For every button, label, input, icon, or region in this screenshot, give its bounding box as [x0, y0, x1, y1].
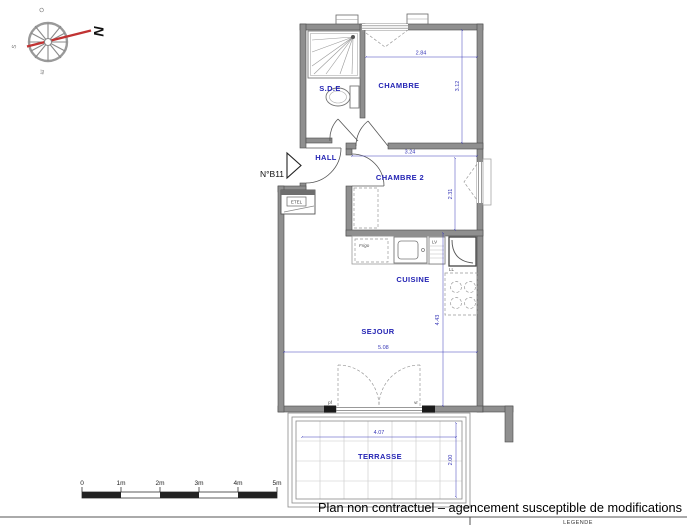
- worktop-corner: [449, 237, 476, 266]
- shower-icon: [308, 31, 360, 78]
- window-chambre2: [464, 159, 491, 205]
- vent-shafts: [336, 14, 428, 24]
- french-door-terrace: pf vr: [324, 365, 435, 413]
- wall-segment: [360, 24, 365, 118]
- scale-bar: 0 1m 2m 3m 4m 5m: [80, 480, 281, 498]
- technical-closet: ETEL: [281, 190, 315, 214]
- scale-label-2m: 2m: [155, 480, 164, 487]
- washing-machine-icon: LL: [445, 267, 477, 315]
- scale-label-4m: 4m: [233, 480, 242, 487]
- dim-chambre2-width: 3.24: [405, 150, 416, 156]
- etel-label: ETEL: [291, 200, 303, 205]
- window-chambre: [362, 24, 408, 47]
- wall-segment: [346, 149, 352, 155]
- disclaimer-text: Plan non contractuel – agencement suscep…: [318, 500, 682, 515]
- wall-segment: [300, 24, 306, 148]
- floor-plan-page: N O S E: [0, 0, 687, 525]
- wall-segment: [477, 24, 483, 412]
- compass-east-label: E: [40, 68, 45, 74]
- scale-label-5m: 5m: [272, 480, 281, 487]
- scale-label-3m: 3m: [194, 480, 203, 487]
- compass-north-label: N: [91, 26, 107, 37]
- door-pf-label: pf: [328, 400, 333, 405]
- dim-terrasse-width: 4.07: [374, 430, 385, 436]
- wall-segment: [306, 138, 332, 143]
- room-label-hall: HALL: [315, 153, 337, 162]
- dim-terrasse-depth: 2.00: [448, 455, 454, 466]
- compass-rose-icon: N O S E: [12, 8, 107, 75]
- footer: Plan non contractuel – agencement suscep…: [0, 500, 687, 525]
- door-vr-label: vr: [414, 400, 418, 405]
- dim-chambre-width: 2.84: [416, 51, 427, 57]
- compass-south-label: S: [12, 44, 19, 49]
- fridge-icon: Frigo: [355, 239, 388, 262]
- wall-segment: [505, 406, 513, 442]
- room-labels: S.D.E CHAMBRE HALL CHAMBRE 2 CUISINE SEJ…: [315, 81, 429, 461]
- wall-segment: [278, 186, 284, 412]
- room-label-chambre: CHAMBRE: [378, 81, 419, 90]
- room-label-sejour: SEJOUR: [361, 327, 394, 336]
- dim-sejour-width: 5.08: [378, 345, 389, 351]
- dim-chambre-depth: 3.12: [455, 81, 461, 92]
- unit-number-label: N°B11: [260, 169, 284, 179]
- room-label-sde: S.D.E: [319, 84, 341, 93]
- entrance-marker-icon: [287, 153, 301, 178]
- dishwasher-label: LV: [432, 240, 437, 245]
- room-label-terrasse: TERRASSE: [358, 452, 402, 461]
- wall-segment: [346, 143, 356, 149]
- fridge-label: Frigo: [359, 243, 370, 248]
- floor-plan-drawing: N O S E: [0, 0, 687, 525]
- legend-title: LEGENDE: [563, 520, 593, 525]
- sde-door: [330, 119, 358, 141]
- dimension-lines: 2.84 3.12 3.24 2.31 5.08 4.43 4.07 2.00: [284, 30, 477, 497]
- dim-sejour-depth: 4.43: [435, 315, 441, 326]
- washing-machine-label: LL: [449, 267, 455, 272]
- wall-segment: [346, 186, 352, 236]
- scale-label-1m: 1m: [116, 480, 125, 487]
- sink-icon: [394, 237, 427, 263]
- compass-needle-icon: [27, 31, 91, 47]
- scale-label-0: 0: [80, 480, 84, 487]
- wall-segment: [346, 230, 483, 236]
- room-label-chambre2: CHAMBRE 2: [376, 173, 424, 182]
- compass-west-label: O: [39, 8, 45, 15]
- dishwasher-icon: LV: [429, 237, 445, 264]
- wall-segment: [388, 143, 483, 149]
- wardrobe-chambre2: [354, 188, 378, 228]
- room-label-cuisine: CUISINE: [396, 275, 429, 284]
- dim-chambre2-depth: 2.31: [448, 189, 454, 200]
- chambre-door: [356, 121, 388, 146]
